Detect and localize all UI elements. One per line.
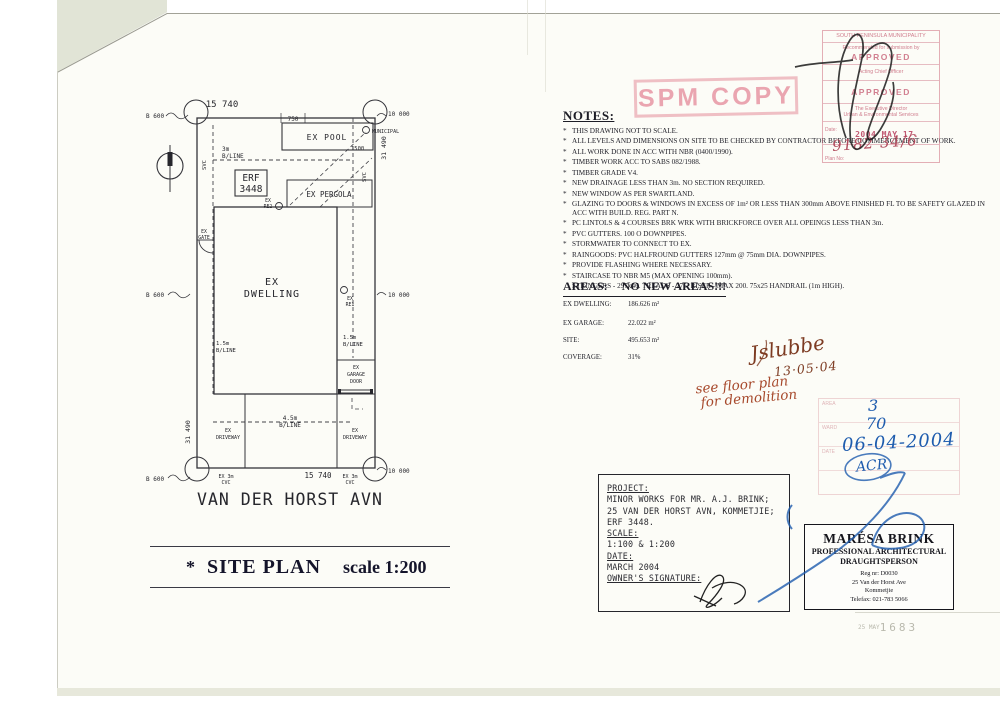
card-role2: DRAUGHTSPERSON	[805, 557, 953, 567]
label-gate-ex: EX	[201, 229, 207, 235]
note-text: ALL WORK DONE IN ACC WITH NBR (0400/1990…	[572, 148, 733, 157]
note-item: *NEW DRAINAGE LESS THAN 3m. NO SECTION R…	[563, 179, 1000, 188]
label-3m-bline: B/LINE	[222, 153, 244, 160]
date-value: MARCH 2004	[607, 562, 775, 573]
bullet: *	[563, 179, 568, 188]
area-label: COVERAGE:	[563, 354, 602, 361]
note-item: *PROVIDE FLASHING WHERE NECESSARY.	[563, 261, 1000, 270]
area-value: 186.626 m²	[628, 301, 659, 308]
label-erf-no: 3448	[240, 184, 263, 195]
bullet: *	[563, 169, 568, 178]
label-15-right-bline: B/LINE	[343, 342, 363, 348]
stamp-planno-label: Plan No:	[825, 156, 844, 162]
paper-bottom-edge	[57, 688, 1000, 696]
plan-title-text: SITE PLAN	[207, 556, 321, 579]
scale-value: 1:100 & 1:200	[607, 539, 775, 550]
area-value: 495.653 m²	[628, 337, 659, 344]
spm-copy-stamp: SPM COPY	[634, 76, 799, 117]
label-driveway-left: DRIVEWAY	[216, 435, 240, 441]
project-label: PROJECT:	[607, 483, 775, 494]
beacon-10000-mid: 10 000	[388, 292, 410, 299]
label-15-left-bline: B/LINE	[216, 348, 236, 354]
dim-1500: 1500	[351, 146, 364, 152]
doc-number-line	[855, 612, 1000, 613]
scan-artifact	[527, 0, 528, 55]
label-garage-door: DOOR	[350, 379, 363, 385]
label-re1-ex: EX	[347, 296, 353, 302]
beacon-10000-bottom: 10 000	[388, 468, 410, 475]
label-re1: RE1	[346, 302, 355, 308]
doc-number: 1683	[880, 621, 919, 634]
dim-bottom: 15 740	[304, 471, 332, 480]
label-re2-ex: EX	[265, 198, 271, 204]
dim-31490-right: 31 490	[380, 136, 388, 160]
label-driveway-right: DRIVEWAY	[343, 435, 367, 441]
stamp-director-1: The Executive Director	[825, 106, 937, 113]
plan-title-block: * SITE PLAN scale 1:200	[150, 546, 450, 588]
beacon-b600-bottom: B 600	[146, 476, 164, 483]
stamp-director-2: Urban & Environmental Services	[825, 112, 937, 119]
gate-arc	[197, 240, 213, 253]
stamp-recommended-text: Recommended for submission by	[825, 45, 937, 52]
dim-31490-left: 31 490	[184, 420, 192, 444]
note-item: *PVC GUTTERS. 100 O DOWNPIPES.	[563, 230, 1000, 239]
note-text: THIS DRAWING NOT TO SCALE.	[572, 127, 678, 136]
note-item: *NEW WINDOW AS PER SWARTLAND.	[563, 190, 1000, 199]
bullet: *	[563, 127, 568, 136]
note-item: *PC LINTOLS & 4 COURSES BRK WRK WITH BRI…	[563, 219, 1000, 228]
area-label: EX GARAGE:	[563, 320, 604, 327]
note-text: NEW DRAINAGE LESS THAN 3m. NO SECTION RE…	[572, 179, 765, 188]
label-15-left: 1.5m	[216, 341, 230, 347]
label-3m: 3m	[222, 146, 230, 153]
label-cvc-left2: CVC	[221, 480, 230, 486]
draughtsperson-card: MARÉSA BRINK PROFESSIONAL ARCHITECTURAL …	[804, 524, 954, 610]
bullet: *	[563, 251, 568, 260]
area-row: EX DWELLING:186.626 m²	[563, 301, 713, 308]
bullet: *	[563, 190, 568, 199]
label-gate: GATE	[198, 235, 210, 241]
notes-heading: NOTES:	[563, 108, 614, 124]
stamp-municipality: SOUTH PENINSULA MUNICIPALITY	[823, 31, 939, 42]
stamp-acting-chief: Acting Chief Officer	[823, 64, 939, 80]
note-item: *RAINGOODS: PVC HALFROUND GUTTERS 127mm …	[563, 251, 1000, 260]
note-item: *STORMWATER TO CONNECT TO EX.	[563, 240, 1000, 249]
note-item: *GLAZING TO DOORS & WINDOWS IN EXCESS OF…	[563, 200, 1000, 218]
north-arrow-icon	[157, 145, 183, 192]
label-cvc-right2: CVC	[345, 480, 354, 486]
stamp-recommended: Recommended for submission by APPROVED	[823, 42, 939, 64]
areas-label: AREAS:	[563, 279, 608, 293]
stamp-director: The Executive Director Urban & Environme…	[823, 103, 939, 122]
admin-empty-row	[819, 470, 959, 494]
site-plan-drawing: 15 740 15 740 750 1500 31 490 31 490 B 6…	[130, 88, 420, 518]
card-address2: Kommetjie	[805, 587, 953, 596]
area-row: SITE:495.653 m²	[563, 337, 713, 344]
handwritten-ward-value: 70	[866, 414, 886, 433]
label-45-bline: B/LINE	[279, 422, 301, 429]
admin-area-label: AREA	[819, 399, 959, 422]
bullet: *	[563, 158, 568, 167]
card-name: MARÉSA BRINK	[805, 531, 953, 547]
beacon-10000-top: 10 000	[388, 111, 410, 118]
stamp-approved-1: APPROVED	[825, 52, 937, 62]
note-item: *TIMBER GRADE V4.	[563, 169, 1000, 178]
paper-top-edge	[167, 13, 1000, 14]
label-municipal: MUNICIPAL	[372, 129, 399, 135]
area-value: 31%	[628, 354, 640, 361]
label-15-right: 1.5m	[343, 335, 357, 341]
label-garage: GARAGE	[347, 372, 365, 378]
handwritten-initials: ACR	[855, 456, 888, 475]
stamp-date-label: Date:	[825, 127, 837, 133]
note-text: PC LINTOLS & 4 COURSES BRK WRK WITH BRIC…	[572, 219, 883, 228]
beacon-b600-top: B 600	[146, 113, 164, 120]
area-row: COVERAGE:31%	[563, 354, 713, 361]
stamp-approved-2: APPROVED	[823, 80, 939, 103]
dim-top: 15 740	[206, 100, 239, 110]
scale-label: SCALE:	[607, 528, 775, 539]
driveway-lines	[245, 394, 337, 468]
note-text: TIMBER GRADE V4.	[572, 169, 638, 178]
label-dwelling-ex: EX	[265, 277, 279, 288]
areas-headline: NO NEW AREAS!!!	[622, 279, 726, 293]
bullet: *	[563, 200, 568, 218]
project-line3: ERF 3448.	[607, 517, 775, 528]
doc-number-prefix: 25 MAY	[858, 624, 880, 631]
label-driveway-right-ex: EX	[352, 428, 358, 434]
scan-artifact	[545, 0, 546, 92]
dim-750: 750	[288, 116, 299, 123]
bullet: *	[563, 230, 568, 239]
label-ex-pool: EX POOL	[307, 133, 348, 142]
card-reg: Reg nr: D0030	[805, 570, 953, 579]
label-ex-pergola: EX PERGOLA	[306, 190, 352, 199]
card-role1: PROFESSIONAL ARCHITECTURAL	[805, 547, 953, 557]
street-name: VAN DER HORST AVN	[197, 490, 383, 509]
note-text: GLAZING TO DOORS & WINDOWS IN EXCESS OF …	[572, 200, 1000, 218]
note-text: RAINGOODS: PVC HALFROUND GUTTERS 127mm @…	[572, 251, 826, 260]
note-text: TIMBER WORK ACC TO SABS 082/1988.	[572, 158, 701, 167]
handwritten-area-value: 3	[868, 396, 878, 415]
project-line1: MINOR WORKS FOR MR. A.J. BRINK;	[607, 494, 775, 505]
project-title-box: PROJECT: MINOR WORKS FOR MR. A.J. BRINK;…	[598, 474, 790, 612]
plan-title-scale: scale 1:200	[343, 557, 426, 578]
area-row: EX GARAGE:22.022 m²	[563, 320, 713, 327]
bullet: *	[563, 261, 568, 270]
area-value: 22.022 m²	[628, 320, 656, 327]
label-45: 4.5m	[283, 415, 298, 422]
bullet: *	[563, 137, 568, 146]
doc-number-stamp: 25 MAY1683	[858, 616, 918, 635]
project-box-text: PROJECT: MINOR WORKS FOR MR. A.J. BRINK;…	[607, 483, 775, 585]
note-text: PROVIDE FLASHING WHERE NECESSARY.	[572, 261, 712, 270]
label-garage-ex: EX	[353, 365, 359, 371]
title-star: *	[186, 557, 195, 578]
label-driveway-left-ex: EX	[225, 428, 231, 434]
project-line2: 25 VAN DER HORST AVN, KOMMETJIE;	[607, 506, 775, 517]
label-svc-left: SVC	[202, 160, 208, 170]
note-text: STORMWATER TO CONNECT TO EX.	[572, 240, 692, 249]
scanned-site-plan-page: 15 740 15 740 750 1500 31 490 31 490 B 6…	[0, 0, 1000, 705]
bullet: *	[563, 240, 568, 249]
area-label: SITE:	[563, 337, 579, 344]
area-label: EX DWELLING:	[563, 301, 612, 308]
label-dwelling: DWELLING	[244, 289, 300, 300]
card-address1: 25 Van der Horst Ave	[805, 579, 953, 588]
label-re2: RE2	[264, 204, 273, 210]
note-text: NEW WINDOW AS PER SWARTLAND.	[572, 190, 694, 199]
owner-signature-label: OWNER'S SIGNATURE:	[607, 573, 775, 584]
bullet: *	[563, 148, 568, 157]
date-label: DATE:	[607, 551, 775, 562]
paper-left-edge	[57, 72, 58, 688]
card-telefax: Telefax: 021-783 5066	[805, 596, 953, 605]
note-text: PVC GUTTERS. 100 O DOWNPIPES.	[572, 230, 686, 239]
label-svc-right: SVC	[362, 172, 368, 182]
ex-dwelling-outline	[214, 207, 337, 394]
beacon-b600-mid: B 600	[146, 292, 164, 299]
areas-heading: AREAS:NO NEW AREAS!!!	[563, 279, 726, 297]
bullet: *	[563, 219, 568, 228]
label-erf: ERF	[242, 173, 259, 184]
